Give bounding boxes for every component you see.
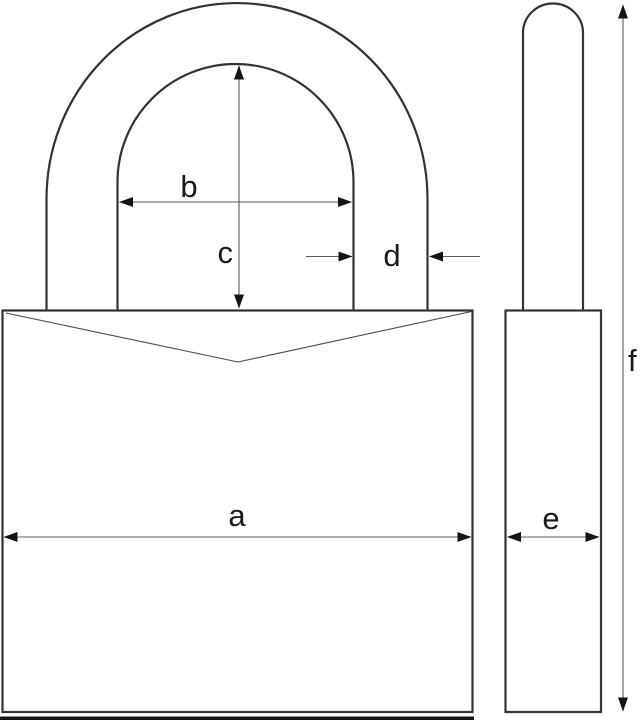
side-shackle-outline bbox=[523, 4, 583, 312]
front-body-notch-line bbox=[6, 312, 472, 363]
dimension-label-a: a bbox=[228, 498, 246, 533]
front-shackle-inner-outline bbox=[118, 64, 354, 311]
dimension-label-b: b bbox=[180, 169, 197, 204]
dimension-label-e: e bbox=[542, 501, 559, 536]
front-shackle-outer-outline bbox=[47, 3, 428, 311]
dimension-label-d: d bbox=[383, 238, 400, 273]
dimension-arrows bbox=[4, 5, 623, 711]
padlock-dimension-diagram: a b c d e f bbox=[0, 0, 640, 720]
side-view bbox=[506, 4, 602, 713]
front-view bbox=[0, 3, 474, 720]
dimension-labels: a b c d e f bbox=[180, 169, 637, 536]
dimension-label-c: c bbox=[218, 235, 234, 270]
front-body-bottom-edge bbox=[0, 717, 474, 720]
diagram-canvas: a b c d e f bbox=[0, 0, 640, 720]
dimension-label-f: f bbox=[628, 343, 637, 378]
